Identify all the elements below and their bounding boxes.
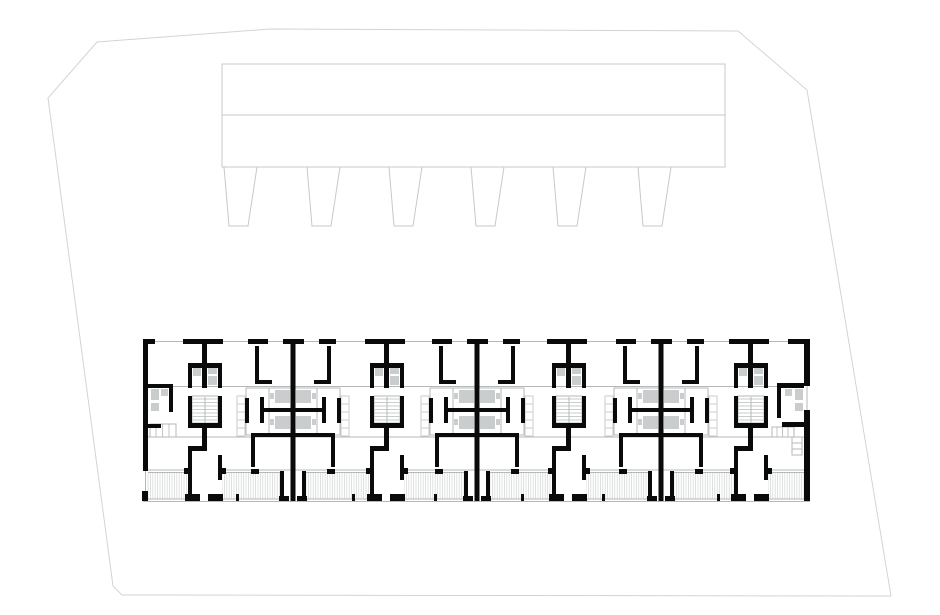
site-plan-drawing: [0, 0, 940, 615]
unit-pair-module: [237, 339, 717, 501]
stair-core-module-at-734: [729, 339, 772, 501]
site-boundary: [48, 29, 891, 596]
stair-core-module-at-188: [183, 339, 226, 501]
stair-core-module-at-552: [547, 339, 590, 501]
upper-building-outline: [222, 64, 725, 226]
floor-plan-canvas: [0, 0, 940, 615]
upper-building-outline: [222, 64, 725, 226]
stair-core-module-at-370: [365, 339, 408, 501]
site-boundary: [48, 29, 891, 596]
